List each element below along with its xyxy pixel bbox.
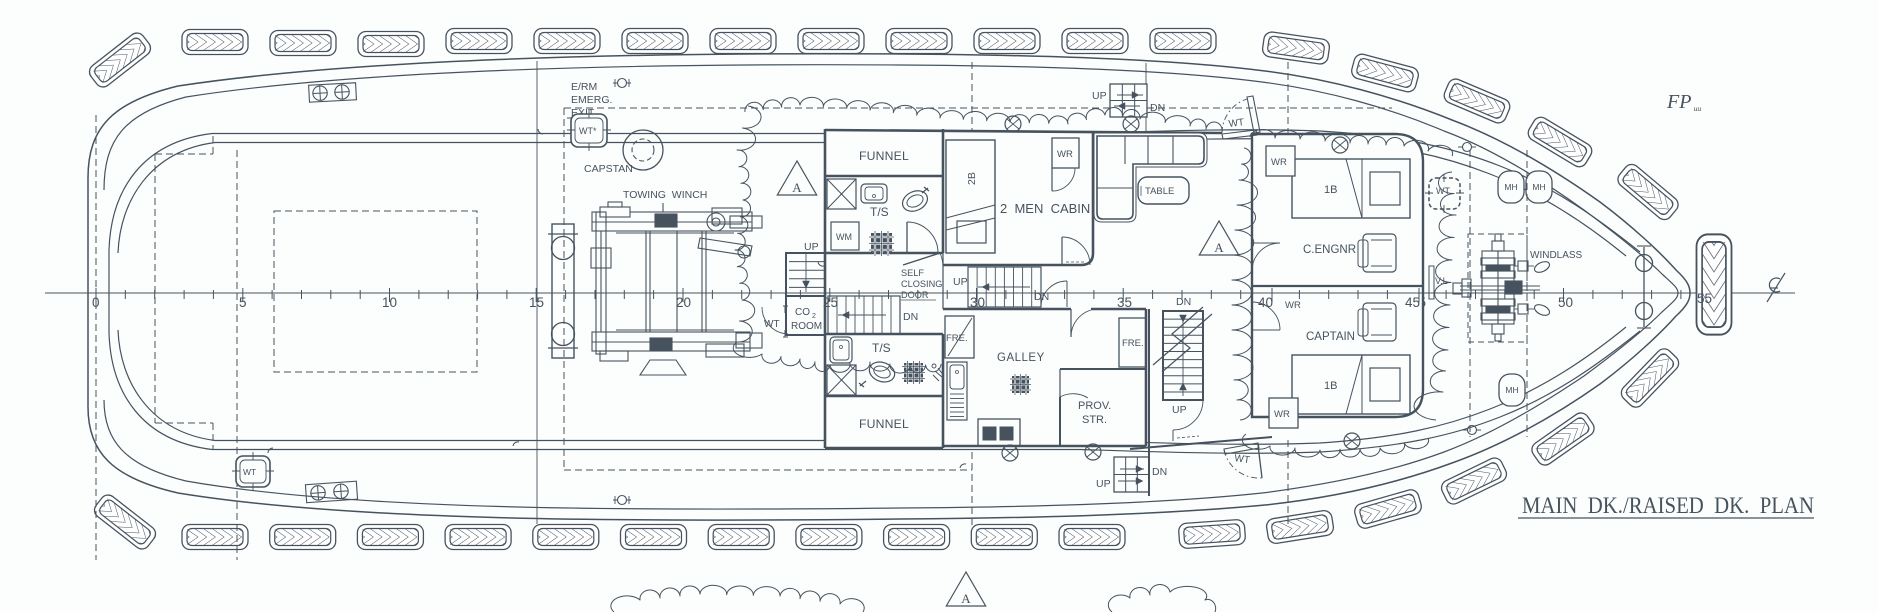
svg-text:WR: WR — [1271, 157, 1287, 168]
svg-text:ROOM: ROOM — [791, 321, 822, 332]
svg-text:WR: WR — [1274, 409, 1290, 420]
svg-text:CAPTAIN: CAPTAIN — [1306, 331, 1355, 343]
svg-text:MH: MH — [1504, 182, 1517, 192]
svg-text:55: 55 — [1697, 291, 1712, 306]
svg-text:15: 15 — [529, 295, 544, 310]
svg-text:PROV.: PROV. — [1078, 400, 1111, 412]
svg-text:1B: 1B — [1324, 184, 1337, 196]
svg-text:UP: UP — [953, 276, 968, 288]
svg-text:1B: 1B — [1324, 380, 1337, 392]
svg-text:FRE.: FRE. — [946, 333, 968, 344]
svg-text:FRE.: FRE. — [1122, 338, 1144, 349]
svg-text:45: 45 — [1405, 295, 1420, 310]
svg-text:SELF: SELF — [901, 268, 924, 278]
svg-text:DN: DN — [903, 311, 918, 323]
svg-text:MAIN DK./RAISED DK. PLAN: MAIN DK./RAISED DK. PLAN — [1522, 493, 1814, 518]
svg-text:CO: CO — [795, 307, 810, 318]
svg-text:DN: DN — [1176, 296, 1191, 308]
svg-text:T/S: T/S — [870, 205, 889, 219]
svg-text:EMERG.: EMERG. — [571, 94, 612, 106]
svg-text:T/S: T/S — [872, 341, 891, 355]
svg-text:2: 2 — [812, 313, 816, 320]
svg-text:20: 20 — [676, 295, 691, 310]
svg-text:A: A — [1214, 240, 1224, 255]
svg-text:10: 10 — [382, 295, 397, 310]
svg-text:TABLE: TABLE — [1145, 186, 1174, 197]
svg-text:DOOR: DOOR — [901, 290, 929, 300]
svg-text:ᵤᵤ: ᵤᵤ — [1693, 98, 1702, 113]
svg-text:WT*: WT* — [579, 126, 597, 136]
svg-text:E/RM: E/RM — [571, 81, 597, 93]
svg-text:MH: MH — [1532, 182, 1545, 192]
svg-text:2B: 2B — [966, 172, 978, 185]
svg-text:UP: UP — [1092, 90, 1107, 102]
svg-text:CAPSTAN: CAPSTAN — [584, 163, 633, 175]
svg-text:40: 40 — [1258, 295, 1273, 310]
svg-text:STR.: STR. — [1082, 414, 1107, 426]
svg-text:WT: WT — [243, 467, 256, 477]
svg-text:FUNNEL: FUNNEL — [859, 417, 909, 431]
svg-text:DN: DN — [1152, 466, 1167, 478]
svg-text:C.ENGNR: C.ENGNR — [1303, 244, 1356, 256]
svg-text:UP: UP — [1172, 404, 1187, 416]
svg-text:UP: UP — [1096, 478, 1111, 490]
svg-text:CLOSING: CLOSING — [901, 279, 942, 289]
svg-text:2 MEN CABIN: 2 MEN CABIN — [1000, 201, 1090, 216]
svg-text:WM: WM — [836, 232, 852, 242]
svg-text:5: 5 — [239, 295, 247, 310]
svg-text:WT: WT — [764, 319, 780, 330]
svg-text:50: 50 — [1558, 295, 1573, 310]
svg-text:WT: WT — [1234, 453, 1251, 466]
svg-text:A: A — [961, 591, 971, 606]
svg-text:WR: WR — [1057, 149, 1073, 160]
svg-text:UP: UP — [804, 241, 819, 253]
svg-text:WT: WT — [1228, 117, 1245, 130]
svg-text:FP: FP — [1666, 91, 1691, 113]
svg-text:A: A — [792, 180, 802, 195]
svg-text:GALLEY: GALLEY — [997, 352, 1045, 364]
svg-text:FUNNEL: FUNNEL — [859, 149, 909, 163]
svg-text:MH: MH — [1505, 385, 1518, 395]
svg-text:WR: WR — [1285, 300, 1301, 311]
svg-text:TOWING WINCH: TOWING WINCH — [623, 189, 707, 201]
svg-text:WINDLASS: WINDLASS — [1530, 250, 1583, 261]
